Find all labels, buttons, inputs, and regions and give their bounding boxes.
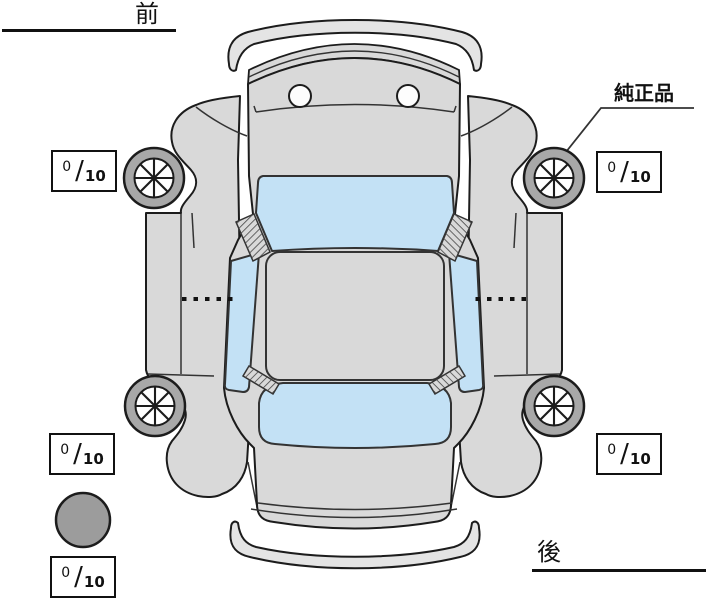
score-separator: /: [74, 564, 83, 590]
tread-score-spare: 0/10: [50, 556, 116, 598]
headlight-left-icon: [289, 85, 311, 107]
wheel-rear-left: [125, 376, 185, 436]
roof-panel: [266, 252, 444, 380]
genuine-part-label: 純正品: [614, 83, 674, 103]
windshield: [256, 176, 454, 251]
tread-score-front-right: 0/10: [596, 151, 662, 193]
score-max: 10: [83, 452, 104, 467]
score-max: 10: [630, 452, 651, 467]
wheel-rear-right: [524, 376, 584, 436]
front-label: 前: [135, 2, 159, 26]
score-value: 0: [60, 443, 69, 457]
tread-score-front-left: 0/10: [51, 150, 117, 192]
score-value: 0: [607, 443, 616, 457]
vehicle-inspection-diagram: 前 後 純正品 0/10 0/10 0/10 0/10 0/10: [0, 0, 711, 600]
score-max: 10: [84, 575, 105, 590]
rear-label-rule: [532, 569, 706, 572]
score-separator: /: [620, 441, 629, 467]
front-label-rule: [2, 29, 176, 32]
score-value: 0: [607, 161, 616, 175]
rear-label: 後: [537, 540, 561, 564]
score-separator: /: [73, 441, 82, 467]
score-value: 0: [61, 566, 70, 580]
score-separator: /: [75, 158, 84, 184]
tread-score-rear-left: 0/10: [49, 433, 115, 475]
rear-window: [259, 383, 451, 448]
car-top-view-icon: [0, 0, 711, 600]
score-value: 0: [62, 160, 71, 174]
score-max: 10: [85, 169, 106, 184]
score-separator: /: [620, 159, 629, 185]
tread-score-rear-right: 0/10: [596, 433, 662, 475]
spare-tire-icon: [56, 493, 110, 547]
headlight-right-icon: [397, 85, 419, 107]
wheel-front-left: [124, 148, 184, 208]
score-max: 10: [630, 170, 651, 185]
wheel-front-right: [524, 148, 584, 208]
